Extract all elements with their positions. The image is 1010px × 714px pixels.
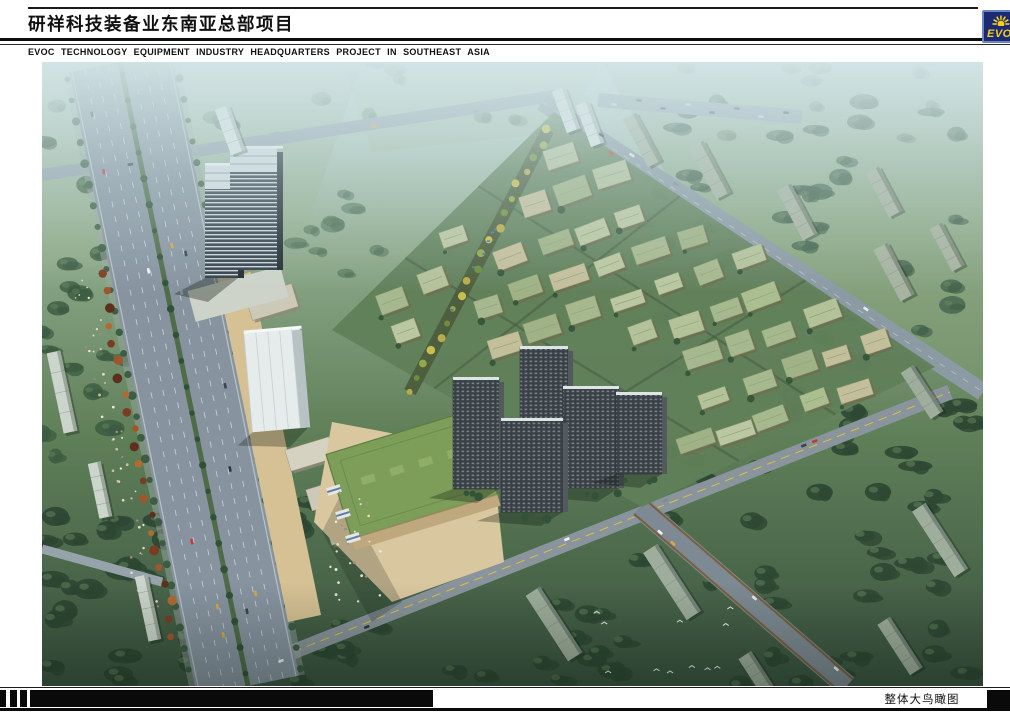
divider-thick bbox=[0, 38, 1010, 41]
footer-stripe bbox=[10, 690, 17, 707]
evoc-logo: EVOC bbox=[982, 10, 1010, 43]
divider-thin bbox=[0, 44, 1010, 45]
image-bottom-rule bbox=[0, 687, 1010, 688]
sunburst-icon bbox=[986, 12, 1010, 26]
project-subtitle-en: EVOC TECHNOLOGY EQUIPMENT INDUSTRY HEADQ… bbox=[28, 47, 490, 57]
top-rule bbox=[28, 7, 978, 9]
presentation-board: 研祥科技装备业东南亚总部项目 EVOC TECHNOLOGY EQUIPMENT… bbox=[0, 0, 1010, 714]
project-title-cn: 研祥科技装备业东南亚总部项目 bbox=[28, 11, 294, 36]
caption-end-block bbox=[987, 690, 1010, 708]
footer-stripe bbox=[0, 690, 6, 707]
view-caption: 整体大鸟瞰图 bbox=[862, 691, 982, 707]
footer-bar bbox=[30, 690, 433, 707]
bottom-rule bbox=[0, 708, 1010, 711]
footer-stripe bbox=[20, 690, 27, 707]
aerial-rendering bbox=[42, 62, 983, 686]
evoc-logo-text: EVOC bbox=[987, 28, 1010, 40]
